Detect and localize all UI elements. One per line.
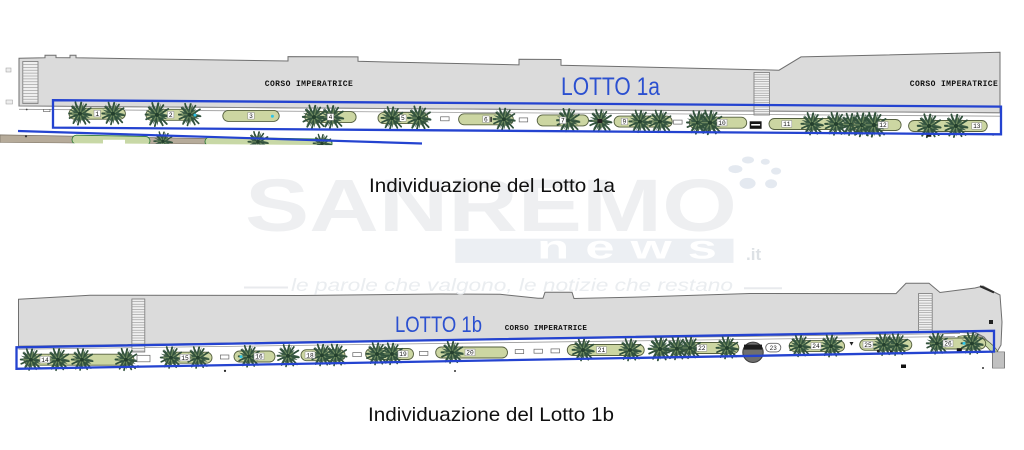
svg-text:14: 14: [41, 357, 49, 364]
svg-text:4: 4: [329, 114, 333, 121]
svg-text:le parole che valgono, le noti: le parole che valgono, le notizie che re…: [291, 275, 733, 295]
svg-text:Individuazione del Lotto 1a: Individuazione del Lotto 1a: [369, 175, 615, 197]
svg-text:news: news: [537, 229, 733, 266]
svg-text:7: 7: [561, 118, 565, 125]
svg-text:2: 2: [169, 112, 173, 119]
svg-text:16: 16: [255, 354, 263, 361]
svg-text:1: 1: [95, 111, 99, 118]
svg-text:26: 26: [944, 341, 952, 348]
svg-text:24: 24: [812, 343, 820, 350]
svg-text:CORSO IMPERATRICE: CORSO IMPERATRICE: [265, 80, 353, 89]
svg-text:.it: .it: [746, 245, 761, 264]
svg-text:6: 6: [484, 116, 488, 123]
svg-text:25: 25: [864, 342, 872, 349]
svg-text:3: 3: [249, 113, 253, 120]
svg-text:LOTTO 1a: LOTTO 1a: [561, 73, 660, 101]
svg-text:12: 12: [879, 122, 887, 129]
svg-text:11: 11: [783, 121, 791, 128]
svg-text:13: 13: [973, 123, 981, 130]
svg-text:5: 5: [401, 115, 405, 122]
svg-text:18: 18: [306, 352, 314, 359]
svg-text:19: 19: [399, 351, 407, 358]
svg-text:CORSO IMPERATRICE: CORSO IMPERATRICE: [910, 80, 998, 89]
svg-text:22: 22: [698, 345, 706, 352]
svg-text:21: 21: [598, 347, 606, 354]
svg-text:Individuazione del Lotto 1b: Individuazione del Lotto 1b: [368, 404, 614, 426]
svg-text:9: 9: [623, 119, 627, 126]
svg-text:10: 10: [718, 120, 726, 127]
svg-text:15: 15: [181, 355, 189, 362]
svg-text:LOTTO 1b: LOTTO 1b: [395, 312, 482, 337]
svg-text:20: 20: [466, 350, 474, 357]
svg-text:CORSO IMPERATRICE: CORSO IMPERATRICE: [505, 325, 588, 333]
svg-text:23: 23: [770, 345, 778, 352]
